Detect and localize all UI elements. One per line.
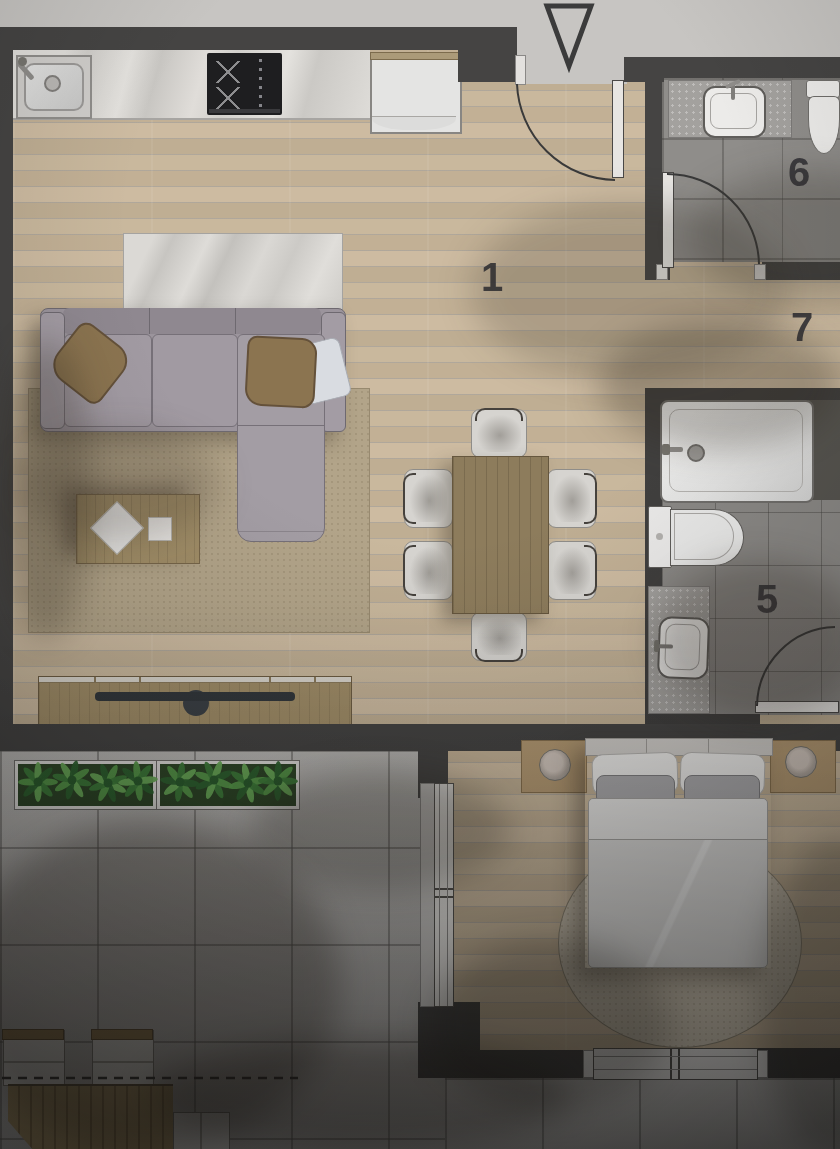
console-panel: [123, 233, 343, 315]
dining-chair: [547, 541, 596, 600]
decor-square: [148, 517, 172, 541]
bathroom-washbasin: [657, 616, 710, 680]
wall-wc-top: [645, 57, 840, 78]
throw-pillow-brown: [244, 335, 318, 409]
bathroom-toilet-bowl: [670, 509, 744, 566]
bathroom-door-leaf: [755, 701, 839, 713]
sofa-seat-cushion: [152, 334, 238, 427]
cooktop: [207, 53, 282, 115]
outdoor-chair-seam: [93, 1061, 153, 1063]
dining-chair: [471, 409, 527, 458]
bathroom-toilet-tank: [648, 506, 672, 568]
tv: [95, 692, 295, 701]
outdoor-chair-top-bar: [2, 1029, 64, 1040]
exterior-top-right: [627, 0, 840, 57]
refrigerator-top-trim: [370, 52, 460, 60]
cooktop-controls: [259, 59, 262, 107]
refrigerator-door: [372, 116, 456, 130]
kitchen-sink: [16, 55, 92, 119]
door-jamb: [515, 55, 526, 85]
wall-top: [0, 27, 517, 50]
tv-console-top-trim: [39, 677, 351, 683]
wc-door-leaf: [662, 172, 674, 268]
washbasin-faucet: [657, 644, 673, 649]
planter-plants: [0, 740, 840, 830]
wall-entrance-left-block: [458, 50, 517, 82]
dining-table: [452, 456, 549, 614]
outdoor-chair-top-bar: [91, 1029, 153, 1040]
cooktop-vent: [209, 109, 280, 113]
dining-chair: [404, 469, 453, 528]
wall-bedroom-left-lower: [418, 1002, 480, 1078]
room-label-5: 5: [756, 577, 778, 622]
wall-wc-bottom-right: [762, 262, 840, 280]
room-label-7: 7: [791, 305, 813, 350]
room-label-6: 6: [788, 150, 810, 195]
room-label-1: 1: [481, 255, 503, 300]
bathtub: [660, 400, 814, 503]
dining-chair: [404, 541, 453, 600]
bathtub-faucet-handle: [662, 444, 670, 455]
wc-washbasin: [703, 86, 766, 138]
burner-icon: [215, 87, 241, 109]
floor-plan: 1 5 6 7: [0, 0, 840, 1149]
outdoor-chair-seam: [200, 1113, 202, 1149]
toilet-seat-line: [674, 513, 734, 560]
entrance-door-leaf: [612, 80, 624, 178]
dining-chair: [471, 612, 527, 661]
exterior-top-entrance: [517, 0, 627, 84]
wall-wc-left: [645, 57, 662, 280]
wall-bedroom-bottom-left: [480, 1050, 593, 1078]
bathtub-drain: [687, 444, 705, 462]
bedroom-bottom-window: [593, 1048, 758, 1080]
sink-faucet-handle: [18, 57, 27, 66]
wall-bedroom-bottom-right: [758, 1048, 840, 1078]
dining-chair: [547, 469, 596, 528]
door-jamb: [754, 264, 766, 280]
sink-drain: [44, 75, 61, 92]
outdoor-chair: [3, 1030, 65, 1086]
wall-left: [0, 27, 13, 750]
outdoor-chair: [92, 1030, 154, 1086]
toilet-flush-button: [656, 533, 663, 540]
outdoor-table: [8, 1084, 173, 1149]
terrace-floor-bottom-strip: [445, 1078, 840, 1149]
washbasin-faucet-handle: [654, 640, 659, 652]
burner-icon: [215, 61, 241, 83]
sofa-back-cushions: [63, 308, 321, 334]
outdoor-chair-seam: [4, 1061, 64, 1063]
outdoor-chair: [173, 1112, 230, 1149]
refrigerator: [370, 52, 462, 134]
